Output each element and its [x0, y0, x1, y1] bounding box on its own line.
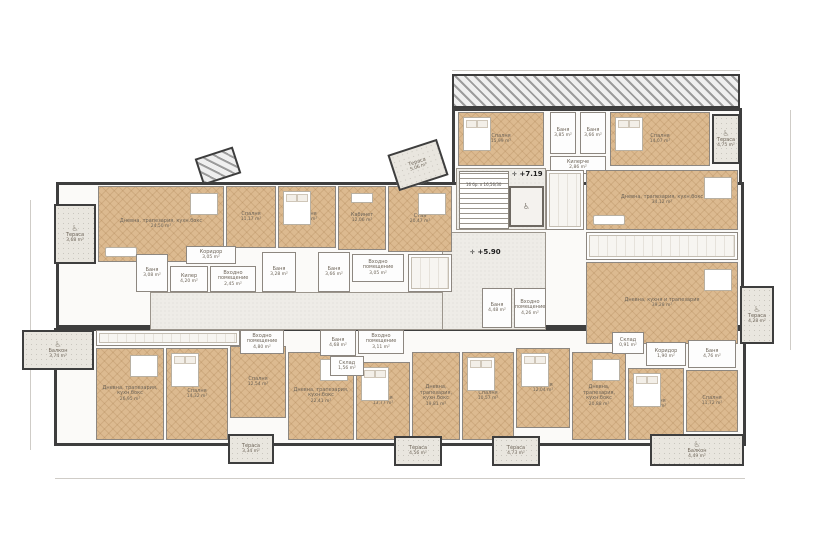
roof-hatch-strip [452, 74, 740, 108]
room-bedroom: Спалня13,77 m² [356, 362, 410, 440]
room-studio: Стая20,47 m² [388, 186, 452, 252]
elevator: ♿ [509, 186, 544, 227]
bed-icon [633, 373, 661, 407]
room-living: Дневна, кухня и трапезария39,28 m² [586, 262, 738, 344]
terrace: Тераса4,73 m² [492, 436, 540, 466]
room-living: Дневна, трапезария, кухн.бокс19,81 m² [412, 352, 460, 440]
room-bedroom: Спалня14,32 m² [166, 348, 228, 440]
bed-icon [463, 117, 491, 151]
room-bedroom: Спалня14,07 m² [610, 112, 710, 166]
elevator-icon: ♿ [523, 202, 530, 211]
desk-icon [351, 193, 373, 203]
room-bath: Баня3,85 m² [550, 112, 576, 154]
room-bath: Баня3,66 m² [318, 252, 350, 292]
dimension-line-right [790, 110, 791, 350]
floor-plan: ♿ ✛ +7.19 ✛ +5.90 16 бр. х 16,56/30 Спал… [0, 0, 835, 540]
room-office: Кабинет12,06 m² [338, 186, 386, 250]
room-bedroom: Спалня11,17 m² [226, 186, 276, 248]
bed-icon [171, 353, 199, 387]
dimension-line-top [452, 70, 740, 71]
dimension-line-bottom [55, 478, 745, 479]
dining-table-icon [418, 193, 446, 215]
common-corridor [150, 292, 450, 330]
bed-icon [615, 117, 643, 151]
room-bedroom: Спалня12,04 m² [516, 348, 570, 428]
kitchen-counter-icon [549, 173, 581, 227]
level-marker-upper: ✛ +7.19 [512, 170, 543, 178]
room-bedroom: Спалня10,57 m² [462, 352, 514, 440]
room-bedroom: Спалня11,72 m² [686, 370, 738, 432]
room-entry: Входно помещение2,45 m² [210, 266, 256, 292]
room-bath: Баня4,76 m² [688, 340, 736, 368]
room-bedroom: Спалня15,99 m² [458, 112, 544, 166]
room-closet: Килер4,20 m² [170, 266, 208, 292]
room-living: Дневна, трапезария, кухн.бокс20,88 m² [572, 352, 626, 440]
room-bedroom: Спалня12,54 m² [230, 346, 286, 418]
room-bath: Баня3,08 m² [136, 254, 168, 292]
dimension-line-left [30, 200, 31, 450]
kitchen-counter-icon [411, 257, 449, 289]
room-bath: Баня4,68 m² [320, 330, 356, 356]
room-entry: Входно помещение3,05 m² [352, 254, 404, 282]
level-marker-icon: ✛ [512, 171, 517, 178]
room-bedroom: Спалня14,02 m² [628, 368, 684, 440]
room-bath: Баня3,66 m² [580, 112, 606, 154]
dining-table-icon [704, 269, 732, 291]
sofa-icon [105, 247, 137, 257]
room-corridor: Коридор1,90 m² [646, 342, 686, 366]
room-living: Дневна, трапезария, кухн.бокс34,12 m² [586, 170, 738, 230]
sofa-icon [593, 215, 625, 225]
kitchen-counter-icon [99, 333, 237, 343]
kitchen-band [586, 232, 738, 260]
level-marker-lower: ✛ +5.90 [470, 248, 501, 256]
dining-table-icon [704, 177, 732, 199]
room-entry: Входно помещение4,26 m² [514, 288, 546, 328]
bed-icon [467, 357, 495, 391]
staircase [459, 171, 509, 229]
room-bedroom: Спалня15,57 m² [278, 186, 336, 248]
stairs-note: 16 бр. х 16,56/30 [466, 182, 501, 187]
kitchen-nook [546, 170, 584, 230]
room-bath: Баня4,48 m² [482, 288, 512, 328]
terrace: ♿Тераса4,28 m² [740, 286, 774, 344]
room-living: Дневна, трапезария, кухн.бокс26,95 m² [96, 348, 164, 440]
dining-table-icon [190, 193, 218, 215]
kitchen-band [96, 330, 240, 346]
balcony: ♿Балкон4,49 m² [650, 434, 744, 466]
room-corridor: Коридор3,05 m² [186, 246, 236, 264]
terrace: ♿Тераса3,68 m² [54, 204, 96, 264]
room-entry: Входно помещение4,80 m² [240, 330, 284, 354]
terrace: Тераса3,34 m² [228, 434, 274, 464]
bed-icon [361, 367, 389, 401]
level-marker-icon: ✛ [470, 249, 475, 256]
bed-icon [283, 191, 311, 225]
kitchen-nook [408, 254, 452, 292]
dining-table-icon [130, 355, 158, 377]
terrace: Тераса4,56 m² [394, 436, 442, 466]
roof-hatch-small [195, 147, 242, 186]
kitchen-counter-icon [589, 235, 735, 257]
room-entry: Входно помещение3,11 m² [358, 330, 404, 354]
terrace: ♿Тераса4,75 m² [712, 114, 740, 164]
room-storage: Склад1,56 m² [330, 356, 364, 376]
room-storage: Склад0,91 m² [612, 332, 644, 354]
balcony: ♿Балкон3,74 m² [22, 330, 94, 370]
dining-table-icon [592, 359, 620, 381]
bed-icon [521, 353, 549, 387]
room-bath: Баня3,28 m² [262, 252, 296, 292]
